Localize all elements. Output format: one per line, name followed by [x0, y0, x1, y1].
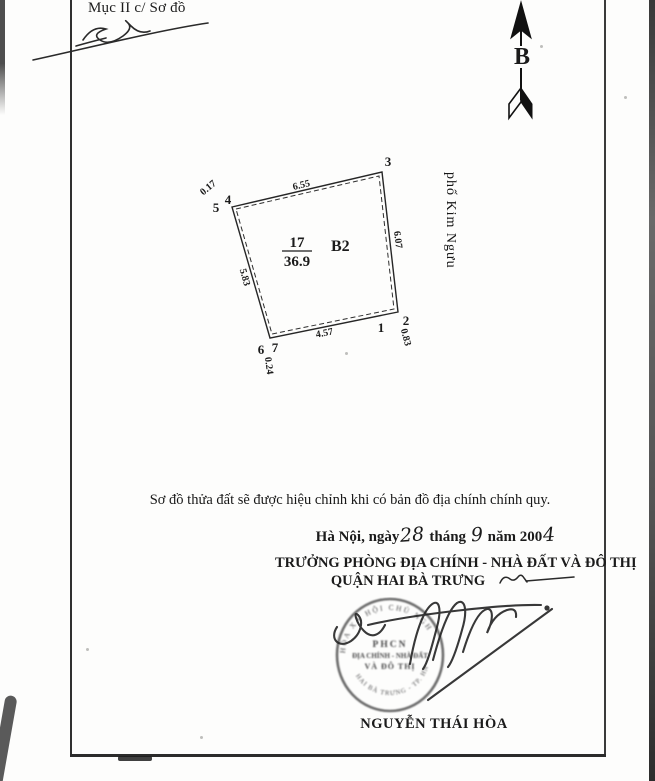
dimension-right: 6.07 — [391, 230, 404, 249]
block-label: B2 — [331, 238, 350, 255]
signature — [315, 592, 570, 707]
scan-edge-left-bottom — [0, 695, 18, 781]
scan-speck — [200, 736, 203, 739]
date-line: Hà Nội, ngày28 tháng 9 năm 2004 — [281, 526, 591, 546]
dimension-bottom: 4.57 — [315, 326, 334, 340]
parcel-boundary-dashed — [236, 176, 394, 334]
vertex-label-5: 5 — [213, 200, 220, 215]
date-month-label: tháng — [429, 529, 466, 545]
scan-edge-right — [649, 0, 655, 781]
north-arrow: B — [495, 0, 547, 126]
signer-name: NGUYỄN THÁI HÒA — [284, 716, 584, 733]
scan-speck — [624, 96, 627, 99]
scan-smudge — [118, 756, 152, 761]
vertex-label-1: 1 — [378, 320, 385, 335]
plot-number: 17 — [290, 235, 306, 251]
section-header-label: Mục II c/ Sơ đồ — [88, 0, 186, 17]
handwritten-year-digit: 4 — [543, 526, 556, 546]
handwritten-month: 9 — [470, 526, 483, 546]
scanned-cadastral-document: Mục II c/ Sơ đồ B 3 4 5 6 7 1 2 6 — [0, 0, 655, 781]
north-label: B — [514, 44, 530, 70]
parcel-boundary-outer — [232, 172, 398, 338]
parcel-diagram: 3 4 5 6 7 1 2 6.55 6.07 5.83 4.57 0.17 0… — [195, 148, 435, 380]
vertex-label-2: 2 — [403, 313, 410, 328]
scan-speck — [86, 648, 89, 651]
vertex-label-6: 6 — [258, 342, 265, 357]
dimension-top: 6.55 — [292, 178, 312, 193]
frame-right-border — [604, 0, 606, 756]
vertex-label-3: 3 — [385, 154, 392, 169]
dimension-offset-bottom-left: 0.24 — [262, 356, 275, 375]
north-arrow-fletch-left — [509, 88, 521, 118]
dimension-offset-bottom-right: 0.83 — [398, 327, 413, 347]
adjustment-note: Sơ đồ thửa đất sẽ được hiệu chỉnh khi có… — [100, 492, 600, 509]
dimension-offset-top-left: 0.17 — [198, 178, 218, 198]
vertex-label-7: 7 — [272, 340, 279, 355]
scan-edge-left-top — [0, 0, 5, 115]
handwritten-day: 28 — [400, 525, 425, 546]
north-arrow-fletch-right — [521, 88, 532, 118]
street-name-label: phố Kim Ngưu — [442, 172, 458, 269]
plot-area: 36.9 — [284, 254, 310, 270]
title-pen-mark — [496, 570, 578, 590]
date-prefix: Hà Nội, ngày — [316, 529, 400, 545]
frame-left-border — [70, 0, 72, 756]
header-initials-scribble — [28, 16, 218, 64]
vertex-label-4: 4 — [225, 192, 232, 207]
date-year-label: năm 200 — [488, 529, 543, 545]
